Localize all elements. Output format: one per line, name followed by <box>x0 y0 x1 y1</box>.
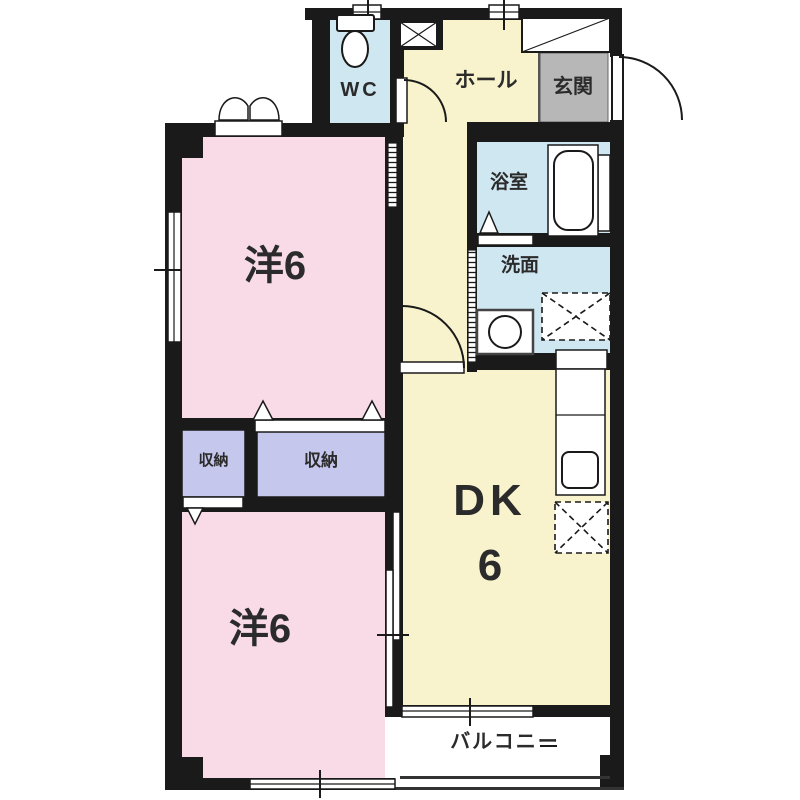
window-west1-left <box>154 212 182 342</box>
western-room-lower-label: 洋6 <box>190 609 330 649</box>
wall-storage-divider <box>245 430 257 497</box>
shoe-cabinet-icon <box>522 18 610 52</box>
dk-size-label: 6 <box>430 544 550 588</box>
washing-machine-icon <box>477 310 533 354</box>
kitchen-sink-icon <box>562 452 598 488</box>
storage-small-label: 収納 <box>183 453 244 468</box>
wall-notch-bottomleft <box>182 757 203 778</box>
wall-right-top <box>610 8 622 57</box>
sliding-door-west1 <box>388 143 397 207</box>
entrance-label: 玄関 <box>538 77 608 97</box>
bathtub-icon <box>548 145 598 236</box>
wall-west1-top <box>165 123 404 137</box>
refrigerator-space-icon <box>555 502 608 553</box>
western-room-upper-label: 洋6 <box>205 246 345 286</box>
entrance-door <box>612 55 682 121</box>
sliding-door-washroom <box>468 250 476 362</box>
wc-label: WC <box>328 80 392 100</box>
hall-corridor-floor <box>403 128 467 372</box>
wall-right-balcony <box>600 755 624 789</box>
wall-notch-topleft <box>182 137 203 158</box>
wall-wc-left <box>312 8 330 137</box>
casement-window-west1-top <box>215 98 282 136</box>
wall-right-main <box>610 122 624 755</box>
wall-bathroom-top <box>467 122 622 142</box>
balcony-label: バルコニー <box>425 732 585 752</box>
window-bathroom-right <box>598 155 610 231</box>
balcony-rail-inner <box>400 776 610 779</box>
floorplan-canvas: WC ホール 玄関 浴室 洗面 収納 収納 洋6 洋6 DK 6 バルコニー <box>0 0 800 800</box>
equipment-space-icon <box>542 293 610 340</box>
balcony-rail-outer <box>395 787 624 790</box>
hall-label: ホール <box>430 70 542 91</box>
washroom-label: 洗面 <box>488 256 552 275</box>
bathroom-label: 浴室 <box>479 173 539 192</box>
kitchen-counter-icon <box>556 350 607 495</box>
storage-large-label: 収納 <box>288 452 354 469</box>
floorplan-drawing <box>0 0 800 800</box>
pipe-space-icon <box>400 22 437 47</box>
dk-label: DK <box>430 479 550 523</box>
